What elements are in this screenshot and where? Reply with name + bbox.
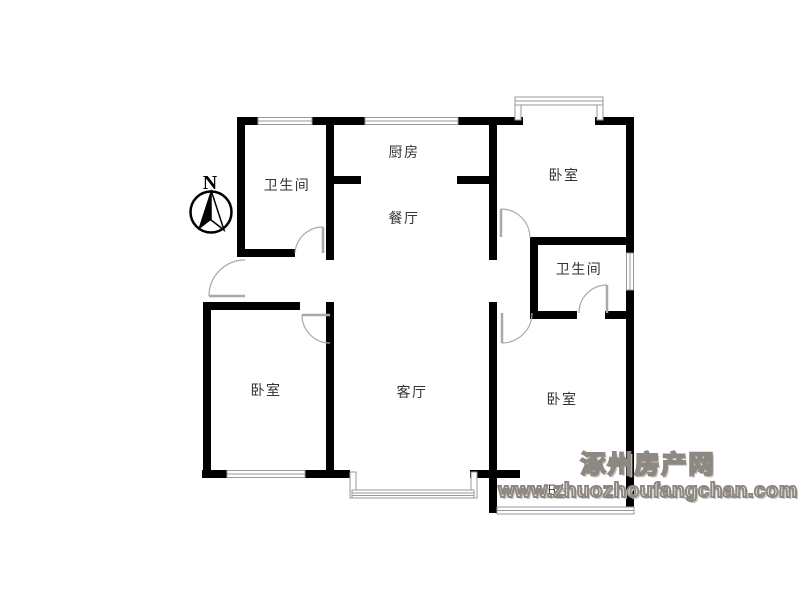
floor-plan: N 卫生间 厨房 餐厅 卧室 卫生间 卧室 客厅 卧室 阳台 涿州房产网 www… bbox=[0, 0, 800, 600]
room-labels: 卫生间 厨房 餐厅 卧室 卫生间 卧室 客厅 卧室 阳台 bbox=[251, 144, 603, 498]
room-label-dining: 餐厅 bbox=[389, 210, 420, 226]
door-entry bbox=[209, 260, 245, 296]
room-label-kitchen: 厨房 bbox=[389, 144, 420, 160]
room-label-bathroom-right: 卫生间 bbox=[556, 261, 603, 277]
room-label-bedroom-top-right: 卧室 bbox=[549, 167, 580, 183]
room-label-balcony: 阳台 bbox=[543, 483, 571, 498]
wall-segment bbox=[532, 237, 634, 245]
window-kitchen bbox=[365, 118, 458, 125]
wall-segment bbox=[489, 302, 497, 513]
wall-segment bbox=[626, 290, 634, 513]
compass: N bbox=[191, 172, 232, 233]
wall-segment bbox=[326, 117, 334, 260]
room-label-bedroom-bottom-right: 卧室 bbox=[547, 391, 578, 407]
wall-segment bbox=[237, 117, 245, 257]
door-bathroom-right bbox=[579, 285, 607, 313]
window-bathroom-right bbox=[627, 253, 634, 290]
wall-segment bbox=[530, 237, 538, 319]
wall-segment bbox=[489, 117, 497, 260]
wall-segment bbox=[203, 302, 300, 310]
bay-window-top bbox=[515, 97, 603, 120]
door-bedroom-bottom-right bbox=[502, 313, 532, 343]
room-label-living: 客厅 bbox=[397, 384, 428, 400]
wall-segment bbox=[532, 311, 577, 319]
wall-segment bbox=[334, 176, 361, 184]
room-label-bedroom-left: 卧室 bbox=[251, 382, 282, 398]
window-balcony bbox=[497, 507, 634, 514]
floor-plan-drawing: N 卫生间 厨房 餐厅 卧室 卫生间 卧室 客厅 卧室 阳台 bbox=[0, 0, 800, 600]
wall-segment bbox=[237, 249, 295, 257]
door-bedroom-left bbox=[302, 315, 330, 343]
wall-segment bbox=[312, 117, 365, 125]
room-label-bathroom-top: 卫生间 bbox=[264, 177, 311, 193]
window-bathroom-top bbox=[258, 118, 312, 125]
door-bathroom-top bbox=[295, 227, 323, 253]
window-living-recessed bbox=[350, 472, 477, 498]
wall-segment bbox=[626, 117, 634, 253]
door-bedroom-top-right bbox=[501, 209, 530, 238]
wall-segment bbox=[203, 302, 211, 478]
wall-segment bbox=[326, 302, 334, 478]
doors bbox=[209, 209, 607, 343]
window-bedroom-left bbox=[227, 471, 305, 478]
